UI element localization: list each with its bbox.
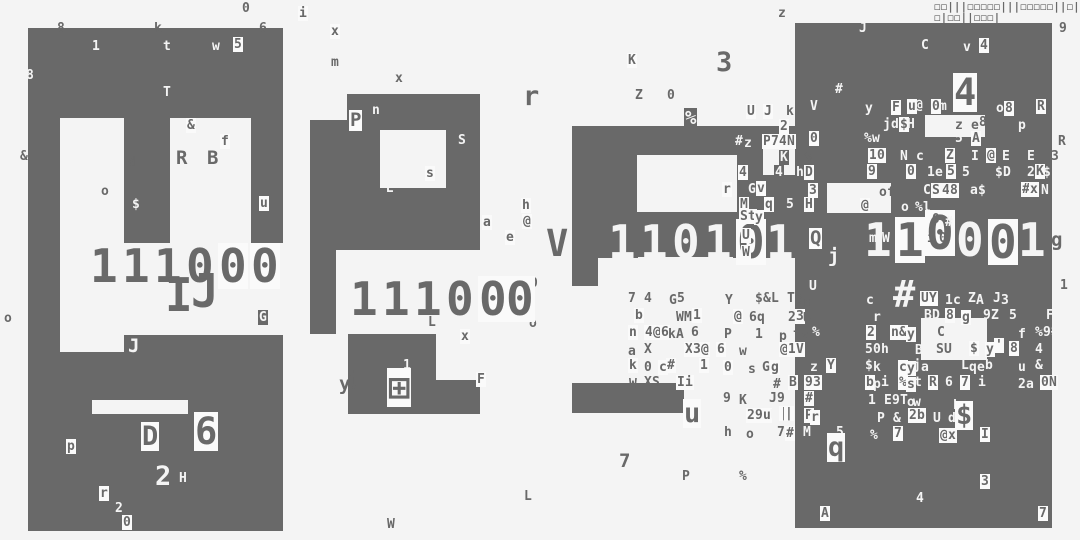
glyph: J xyxy=(993,291,1001,306)
glyph: f xyxy=(1018,327,1026,342)
glyph: 6 xyxy=(691,325,699,340)
glyph: 8 xyxy=(57,21,65,36)
glyph: 8 xyxy=(26,68,34,83)
glyph: j xyxy=(828,246,839,267)
glyph: # xyxy=(835,82,843,97)
glyph: 0 xyxy=(1054,308,1062,323)
glyph: T xyxy=(163,85,171,100)
glyph: p xyxy=(873,377,881,392)
glyph: H xyxy=(804,197,814,212)
glyph: 7 xyxy=(777,425,785,440)
glyph: 9 xyxy=(892,393,900,408)
glyph: b xyxy=(985,358,993,373)
glyph: 2 xyxy=(1027,165,1035,180)
glyph: b xyxy=(916,408,926,423)
glyph: h xyxy=(881,342,889,357)
glyph: s xyxy=(748,362,756,377)
glyph: @ xyxy=(522,214,532,229)
glyph: R xyxy=(176,148,187,169)
glyph: % xyxy=(812,325,820,340)
glyph: a xyxy=(1026,377,1034,392)
glyph: t xyxy=(163,39,171,54)
glyph: @ xyxy=(733,309,743,324)
glyph: W xyxy=(629,377,637,392)
glyph: j xyxy=(913,358,921,373)
glyph: a xyxy=(921,360,929,375)
glyph: f xyxy=(887,185,895,200)
glyph: z xyxy=(810,360,818,375)
glyph: N xyxy=(900,149,908,164)
glyph: k xyxy=(154,21,162,36)
glyph: E xyxy=(1027,149,1035,164)
glyph: 5 xyxy=(677,291,685,306)
glyph: g xyxy=(961,310,971,325)
glyph: Z xyxy=(945,148,955,163)
glyph: R xyxy=(1058,134,1066,149)
glyph: s xyxy=(425,166,435,181)
glyph: i xyxy=(298,6,308,21)
glyph: S xyxy=(652,375,660,390)
glyph: w xyxy=(212,39,220,54)
glyph: & xyxy=(20,149,28,164)
glyph: 4 xyxy=(738,165,748,180)
barcode-strip: ◻◻|||◻◻◻◻◻|||◻◻◻◻◻||◻|◻|◻◻||◻◻◻| xyxy=(934,1,1080,23)
glyph: v xyxy=(963,40,971,55)
glyph: j xyxy=(883,117,891,132)
glyph: k xyxy=(786,104,794,119)
glyph: P xyxy=(877,411,885,426)
glyph: P xyxy=(724,327,732,342)
glyph: E xyxy=(1002,149,1010,164)
glyph: 7 xyxy=(619,451,630,472)
glyph: T xyxy=(787,291,795,306)
glyph: Z xyxy=(968,291,976,306)
glyph: & xyxy=(1035,358,1043,373)
glyph: 7 xyxy=(628,291,636,306)
glyph: K xyxy=(779,150,789,165)
glyph: c xyxy=(916,149,924,164)
glyph: z xyxy=(744,136,752,151)
glyph: X xyxy=(644,375,652,390)
glyph: 9 xyxy=(777,391,785,406)
glyph: h xyxy=(724,425,732,440)
glyph: y xyxy=(754,210,764,225)
glyph: p xyxy=(1018,118,1026,133)
glyph: 4 xyxy=(916,491,924,506)
glyph: F xyxy=(1046,308,1054,323)
glyph: L xyxy=(771,291,779,306)
glyph: % xyxy=(870,428,878,443)
glyph: 3 xyxy=(812,375,822,390)
glyph: 9 xyxy=(723,391,731,406)
glyph: 2 xyxy=(866,325,876,340)
glyph: L xyxy=(524,489,532,504)
glyph: 5 xyxy=(1009,308,1017,323)
glyph: @ xyxy=(986,148,996,163)
glyph: y xyxy=(865,101,873,116)
glyph: i xyxy=(927,231,935,246)
noise-cutout xyxy=(170,118,251,243)
glyph: 3 xyxy=(980,474,990,489)
glyph: W xyxy=(387,517,395,532)
glyph: 1 xyxy=(864,217,892,263)
glyph: M xyxy=(684,310,692,325)
glyph: 1 xyxy=(755,327,763,342)
glyph: k xyxy=(873,360,881,375)
glyph: i xyxy=(978,375,986,390)
glyph: % xyxy=(804,150,812,165)
glyph: d xyxy=(891,117,899,132)
glyph: Q xyxy=(809,228,822,249)
glyph: 0 xyxy=(242,1,250,16)
glyph: r xyxy=(99,486,109,501)
glyph: 0 xyxy=(446,276,474,322)
glyph: B xyxy=(924,308,932,323)
glyph: F xyxy=(891,100,901,115)
glyph: 8 xyxy=(949,183,959,198)
glyph: n xyxy=(803,295,811,310)
glyph: a xyxy=(482,215,492,230)
glyph: 2 xyxy=(155,462,171,491)
glyph: x xyxy=(395,71,403,86)
glyph: 1 xyxy=(608,219,636,265)
glyph: $ xyxy=(969,341,979,356)
glyph: 8 xyxy=(1004,101,1014,116)
glyph: n xyxy=(628,325,638,340)
glyph: G xyxy=(258,310,268,325)
glyph: 2 xyxy=(115,501,123,516)
glyph: I xyxy=(971,149,979,164)
noise-cutout xyxy=(436,334,480,380)
glyph: 9 xyxy=(983,308,991,323)
glyph: J xyxy=(128,336,139,357)
glyph: A xyxy=(676,327,684,342)
glyph: 5 xyxy=(946,164,956,179)
glyph: t xyxy=(793,327,801,342)
glyph: 5 xyxy=(233,37,243,52)
glyph: x xyxy=(947,428,957,443)
glyph: r xyxy=(873,310,881,325)
glyph: | xyxy=(784,406,794,421)
glyph: 4 xyxy=(644,291,652,306)
glyph: e xyxy=(977,360,985,375)
glyph: x xyxy=(460,329,470,344)
glyph: 1 xyxy=(868,393,876,408)
glyph: 3 xyxy=(808,183,818,198)
glyph: & xyxy=(893,411,901,426)
glyph: h xyxy=(521,198,531,213)
glyph: 8 xyxy=(945,308,955,323)
glyph: U xyxy=(803,311,811,326)
glyph: 1 xyxy=(92,39,100,54)
glyph: A xyxy=(971,131,981,146)
glyph: 7 xyxy=(893,426,903,441)
glyph: v xyxy=(756,181,766,196)
glyph: 7 xyxy=(1038,506,1048,521)
glyph: ' xyxy=(994,338,1004,353)
glyph: H xyxy=(907,117,915,132)
glyph: V xyxy=(546,224,568,263)
glyph: o xyxy=(101,184,109,199)
noise-block xyxy=(572,383,684,413)
glyph: 0 xyxy=(809,131,819,146)
glyph: 9 xyxy=(1059,21,1067,36)
glyph: 1 xyxy=(350,276,378,322)
glyph: # xyxy=(785,426,795,441)
glyph: B xyxy=(915,343,923,358)
glyph: 0 xyxy=(873,342,881,357)
glyph: k xyxy=(668,327,676,342)
glyph: $ xyxy=(978,183,986,198)
noise-cutout xyxy=(92,400,188,414)
glyph: ⊞ xyxy=(387,368,411,407)
glyph: e xyxy=(505,230,515,245)
glyph: J xyxy=(763,104,773,119)
glyph: C xyxy=(923,183,931,198)
glyph: q xyxy=(757,310,765,325)
glyph: D xyxy=(804,165,814,180)
glyph: C xyxy=(937,325,945,340)
glyph: 1 xyxy=(945,293,953,308)
glyph: 1 xyxy=(122,243,150,289)
glyph: 1 xyxy=(382,276,410,322)
glyph: 2 xyxy=(779,119,789,134)
glyph: z xyxy=(778,6,786,21)
glyph: % xyxy=(864,131,872,146)
glyph: 0 xyxy=(505,276,535,322)
glyph: m xyxy=(939,99,947,114)
glyph: S xyxy=(931,183,941,198)
glyph: @ xyxy=(700,342,710,357)
glyph: 5 xyxy=(955,131,963,146)
glyph: 6 xyxy=(716,342,726,357)
glyph: 0 xyxy=(218,243,248,289)
glyph: # xyxy=(804,391,814,406)
glyph: o xyxy=(996,101,1004,116)
glyph: $ xyxy=(995,165,1003,180)
glyph: $ xyxy=(618,260,626,275)
glyph: u xyxy=(259,196,269,211)
glyph: A xyxy=(976,293,984,308)
glyph: U xyxy=(933,411,941,426)
glyph: $ xyxy=(865,358,873,373)
glyph: P xyxy=(349,110,362,131)
glyph: P xyxy=(682,469,690,484)
glyph: r xyxy=(810,410,820,425)
glyph: $ xyxy=(755,291,763,306)
glyph: % xyxy=(739,469,747,484)
glyph: U xyxy=(770,408,778,423)
glyph: 1 xyxy=(640,219,668,265)
glyph: N xyxy=(1041,183,1049,198)
glyph: X xyxy=(644,342,652,357)
glyph: 1 xyxy=(90,243,118,289)
glyph: t xyxy=(914,375,922,390)
glyph: 1 xyxy=(895,217,925,263)
glyph: B xyxy=(788,375,798,390)
glyph: % xyxy=(1035,325,1043,340)
glyph: S xyxy=(936,342,944,357)
glyph: M xyxy=(803,425,811,440)
glyph: p xyxy=(66,439,76,454)
glitch-canvas: ◻◻|||◻◻◻◻◻|||◻◻◻◻◻||◻|◻|◻◻||◻◻◻| 08k61tw… xyxy=(0,0,1080,540)
glyph: o xyxy=(746,427,754,442)
glyph: 0 xyxy=(644,360,652,375)
glyph: 0 xyxy=(723,360,733,375)
glyph: L xyxy=(961,358,969,373)
glyph: W xyxy=(676,310,684,325)
glyph: 1 xyxy=(692,308,702,323)
glyph: U xyxy=(741,228,751,243)
glyph: K xyxy=(627,53,637,68)
glyph: # xyxy=(666,358,676,373)
glyph: 6 xyxy=(945,375,953,390)
glyph: w xyxy=(872,131,880,146)
glyph: # xyxy=(773,377,781,392)
glyph: % xyxy=(684,108,697,129)
glyph: u xyxy=(683,399,701,428)
glyph: y xyxy=(906,327,916,342)
glyph: m xyxy=(331,55,339,70)
glyph: Y xyxy=(826,358,836,373)
glyph: D xyxy=(1003,165,1011,180)
glyph: 8 xyxy=(979,115,987,130)
glyph: c xyxy=(866,293,874,308)
glyph: v xyxy=(801,327,809,342)
glyph: 0 xyxy=(956,217,984,263)
glyph: a xyxy=(628,344,636,359)
noise-block xyxy=(572,258,598,286)
glyph: 0 xyxy=(876,148,886,163)
glyph: 3 xyxy=(1051,149,1059,164)
glyph: n xyxy=(372,103,380,118)
glyph: D xyxy=(932,308,940,323)
glyph: V xyxy=(810,99,818,114)
glyph: 4 xyxy=(953,73,977,112)
glyph: & xyxy=(186,118,196,133)
glyph: N xyxy=(786,134,796,149)
glyph: x xyxy=(1029,182,1039,197)
glyph: f xyxy=(220,134,230,149)
glyph: u xyxy=(1018,360,1026,375)
glyph: q xyxy=(827,433,845,462)
glyph: Y xyxy=(725,293,733,308)
glyph: # xyxy=(893,275,915,314)
glyph: I xyxy=(980,427,990,442)
glyph: 5 xyxy=(865,342,873,357)
glyph: G xyxy=(762,360,770,375)
glyph: D xyxy=(141,422,159,451)
glyph: 0 xyxy=(932,212,940,227)
glyph: J xyxy=(769,391,777,406)
glyph: f xyxy=(702,174,718,203)
glyph: # xyxy=(1051,324,1059,339)
glyph: 4 xyxy=(774,165,784,180)
glyph: $ xyxy=(132,197,140,212)
glyph: w xyxy=(739,344,747,359)
glyph: Y xyxy=(928,291,938,306)
glyph: 1 xyxy=(927,165,935,180)
glyph: 6 xyxy=(194,412,218,451)
glyph: V xyxy=(795,342,805,357)
glyph: # xyxy=(735,134,743,149)
glyph: 7 xyxy=(960,375,970,390)
glyph: J xyxy=(191,268,219,314)
glyph: 0 xyxy=(250,243,280,289)
glyph: 1 xyxy=(1018,217,1046,263)
glyph: x xyxy=(330,24,340,39)
glyph: k xyxy=(628,358,638,373)
glyph: 5 xyxy=(786,197,794,212)
glyph: L xyxy=(428,315,436,330)
glyph: a xyxy=(970,183,978,198)
glyph: F xyxy=(476,372,486,387)
glyph: 5 xyxy=(962,165,970,180)
noise-cutout xyxy=(380,130,446,188)
glyph: 8 xyxy=(795,293,803,308)
glyph: C xyxy=(921,38,929,53)
glyph: 1 xyxy=(766,219,794,265)
glyph: j xyxy=(348,369,359,390)
glyph: 6 xyxy=(259,21,267,36)
glyph: 0 xyxy=(122,515,132,530)
glyph: & xyxy=(763,291,771,306)
glyph: @ xyxy=(860,198,870,213)
glyph: 1 xyxy=(704,219,732,265)
glyph: E xyxy=(884,393,892,408)
glyph: B xyxy=(207,148,218,169)
glyph: i xyxy=(684,375,694,390)
glyph: $ xyxy=(1043,165,1051,180)
glyph: g xyxy=(1051,230,1062,251)
glyph: G xyxy=(748,182,756,197)
glyph: N xyxy=(1048,375,1058,390)
glyph: e xyxy=(935,165,943,180)
glyph: q xyxy=(969,360,977,375)
glyph: @ xyxy=(915,98,923,113)
glyph: 1 xyxy=(1060,278,1068,293)
glyph: U xyxy=(809,279,817,294)
glyph: 1 xyxy=(699,358,709,373)
glyph: U xyxy=(944,342,952,357)
glyph: I xyxy=(165,272,193,318)
glyph: q xyxy=(764,197,774,212)
glyph: 0 xyxy=(672,219,700,265)
glyph: 0 xyxy=(478,276,508,322)
glyph: E xyxy=(386,181,394,196)
glyph: r xyxy=(523,82,539,111)
glyph: g xyxy=(770,360,780,375)
glyph: 3 xyxy=(1001,293,1009,308)
glyph: Z xyxy=(635,88,643,103)
glyph: 6 xyxy=(749,310,757,325)
glyph: 2 xyxy=(1018,377,1026,392)
noise-cutout xyxy=(310,94,347,120)
glyph: J xyxy=(859,21,867,36)
glyph: o xyxy=(4,311,12,326)
glyph: 0 xyxy=(988,219,1018,265)
glyph: i xyxy=(881,375,889,390)
glyph: 9 xyxy=(1043,325,1051,340)
glyph: H xyxy=(179,471,187,486)
glyph: K xyxy=(739,393,747,408)
glyph: A xyxy=(820,506,830,521)
glyph: G xyxy=(669,293,677,308)
glyph: # xyxy=(945,215,953,230)
glyph: 8 xyxy=(1009,341,1019,356)
glyph: d xyxy=(128,155,136,170)
glyph: 0 xyxy=(939,231,947,246)
